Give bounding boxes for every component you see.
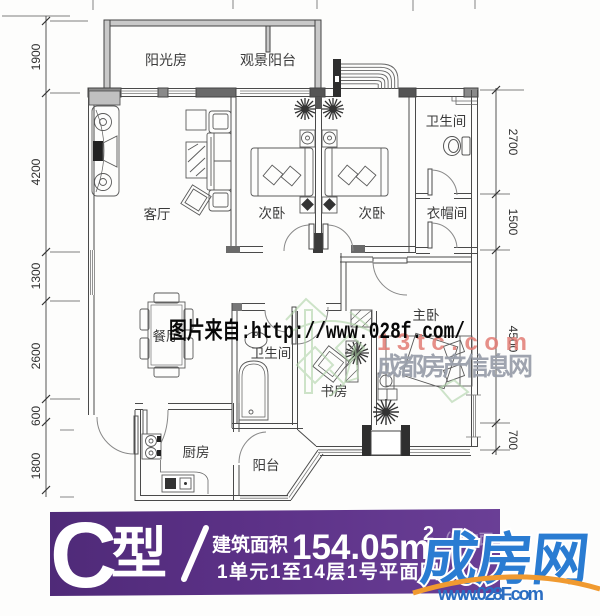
svg-text:阳台: 阳台 [253,458,280,473]
svg-text:次卧: 次卧 [359,206,386,221]
svg-text:次卧: 次卧 [259,206,286,221]
svg-text:C: C [50,503,117,607]
svg-text:1900: 1900 [29,43,43,70]
svg-text:成都房产信息网: 成都房产信息网 [377,352,533,381]
svg-text:衣帽间: 衣帽间 [427,206,468,221]
svg-text:600: 600 [29,406,43,426]
svg-text:观景阳台: 观景阳台 [240,52,296,68]
svg-text:www.028F.com: www.028F.com [437,583,544,604]
svg-text:卫生间: 卫生间 [251,346,292,361]
svg-text:1800: 1800 [29,452,43,479]
svg-text:建筑面积: 建筑面积 [212,533,288,556]
svg-text:2700: 2700 [506,129,520,156]
svg-text:1500: 1500 [506,209,520,236]
svg-text:1300: 1300 [29,262,43,289]
svg-text:厨房: 厨房 [183,445,210,460]
svg-text:图片来自:http://www.028f.com/: 图片来自:http://www.028f.com/ [169,317,465,345]
svg-text:卫生间: 卫生间 [426,114,467,129]
svg-text:2600: 2600 [29,342,43,369]
svg-text:客厅: 客厅 [144,206,171,222]
svg-text:阳光房: 阳光房 [145,52,187,68]
svg-text:4200: 4200 [29,158,43,185]
svg-text:1单元1至14层1号平面图: 1单元1至14层1号平面图 [217,560,439,583]
svg-text:型: 型 [111,522,167,585]
svg-text:700: 700 [506,430,520,450]
